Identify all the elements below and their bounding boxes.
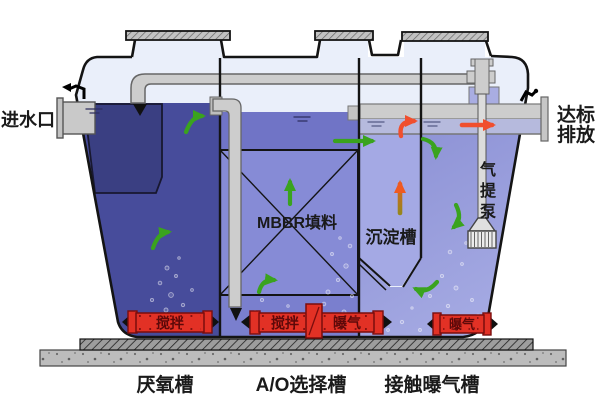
outlet-pipe: [360, 97, 548, 141]
airlift-pump-label-char3: 泵: [479, 203, 496, 221]
pump-tee-fitting: [475, 59, 489, 94]
outlet-pipe-wall: [360, 104, 543, 119]
inlet-flange: [57, 98, 63, 138]
settling-tank-water: [360, 134, 420, 286]
airlift-pump-label-char2: 提: [480, 182, 497, 200]
mid-stirrer-label: 搅拌: [271, 315, 299, 331]
outlet-pipe-water: [360, 119, 543, 134]
concrete-foundation: [40, 339, 566, 366]
discharge-label-line2: 排放: [557, 123, 596, 146]
right-aerator-label: 曝气: [449, 317, 475, 332]
manhole-covers: [126, 31, 488, 41]
manhole1-neck-space: [134, 40, 222, 58]
airlift-pump-label-char1: 气: [479, 160, 496, 179]
stirrer-device-anaerobic: 搅拌: [122, 311, 219, 333]
anaerobic-tank-label: 厌氧槽: [136, 373, 193, 396]
manhole-cover-1: [126, 31, 230, 40]
concrete-hatched-strip: [80, 339, 533, 350]
outlet-flange: [541, 97, 548, 141]
manhole2-neck-space: [320, 40, 368, 58]
mid-aerator-label: 曝气: [333, 315, 361, 331]
manhole-cover-3: [402, 32, 488, 41]
inlet-pipe-body: [62, 102, 95, 134]
concrete-slab: [40, 350, 566, 366]
settling-tank-label: 沉淀槽: [366, 227, 417, 247]
discharge-label-line1: 达标: [557, 103, 595, 126]
ao-selector-tank-label: A/O选择槽: [256, 373, 347, 396]
contact-aeration-tank-label: 接触曝气槽: [384, 373, 479, 396]
wastewater-treatment-diagram: 搅拌 搅拌 曝气 曝气: [0, 0, 600, 400]
pump-intake-screen: [468, 231, 496, 248]
manhole-cover-2: [315, 31, 373, 40]
diagram-canvas: 搅拌 搅拌 曝气 曝气: [0, 0, 600, 400]
inlet-label: 进水口: [1, 109, 55, 130]
left-stirrer-label: 搅拌: [156, 315, 184, 331]
aerator-device-contact: 曝气: [427, 313, 498, 335]
mbbr-media-label: MBBR填料: [257, 213, 337, 232]
manhole3-neck-space: [404, 41, 485, 58]
